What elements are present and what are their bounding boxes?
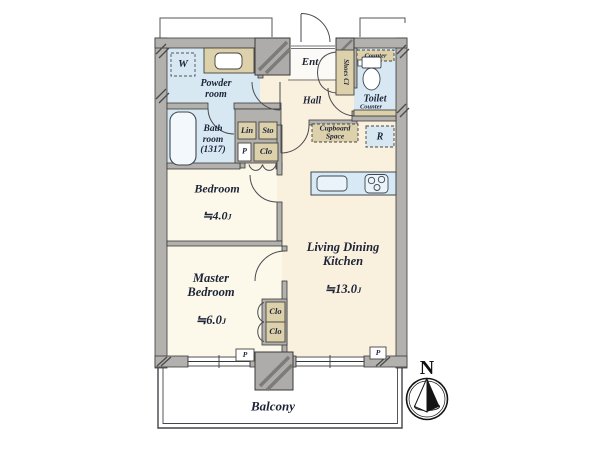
shoes-closet: [336, 50, 354, 95]
entrance-floor: [290, 48, 336, 79]
compass-needle-white: [415, 378, 428, 412]
floorplan-drawing: [0, 0, 600, 450]
vanity-sink: [215, 53, 242, 69]
kitchen-sink: [317, 176, 347, 191]
pipe-space-right: [370, 347, 386, 359]
bedroom-floor: [167, 168, 277, 241]
compass-needle-black: [427, 378, 440, 412]
master-closet-1: [266, 302, 285, 322]
entrance-door-sill: [291, 46, 335, 49]
floor-plan: W Powder room Bath room (1317) Lin Sto P…: [0, 0, 600, 450]
pipe-space-hall: [238, 143, 251, 161]
cupboard-space: [312, 124, 358, 142]
master-closet-2: [266, 322, 285, 342]
toilet-flush: [358, 60, 362, 66]
corridor-outline: [160, 18, 405, 38]
toilet-tank: [362, 57, 381, 68]
storage-closet: [259, 122, 277, 139]
closet-hall: [254, 143, 278, 161]
fridge-space: [366, 126, 394, 147]
bathtub: [170, 112, 196, 165]
toilet-bowl: [363, 68, 380, 90]
pipe-space-left: [236, 349, 254, 361]
linen-closet: [238, 122, 256, 139]
compass-icon: [407, 378, 448, 420]
toilet-counter-side: [354, 110, 396, 116]
entrance-door: [301, 13, 330, 42]
